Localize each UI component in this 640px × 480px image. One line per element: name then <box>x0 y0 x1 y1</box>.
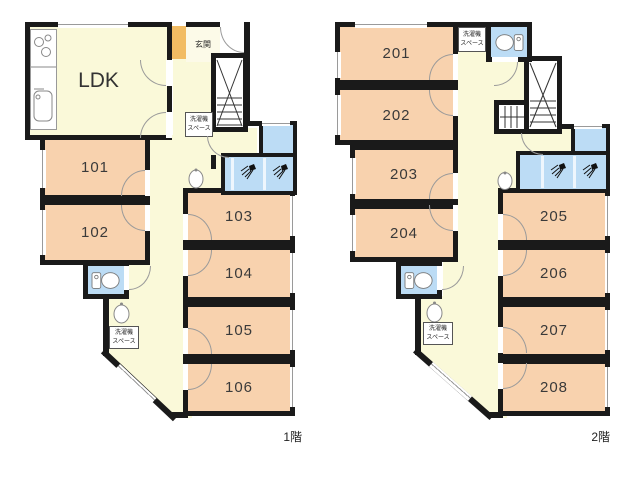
door-gap <box>145 170 150 196</box>
door-gap <box>453 205 458 231</box>
washbasin-icon <box>188 166 204 189</box>
window-marker <box>574 124 602 129</box>
kitchen-sink-icon <box>34 89 52 121</box>
washbasin-icon <box>113 300 130 324</box>
partition <box>263 158 266 190</box>
window-marker <box>40 210 46 255</box>
room-204-label: 204 <box>390 225 418 242</box>
washbasin-icon <box>497 169 513 191</box>
kitchen-counter <box>30 29 57 130</box>
room-105-label: 105 <box>225 322 253 339</box>
partition <box>541 156 544 188</box>
washer-space-label: 洗濯機 スペース <box>109 326 139 349</box>
shower-icon <box>549 162 567 180</box>
window-marker <box>290 196 296 236</box>
room-104-label: 104 <box>225 265 253 282</box>
window-marker <box>605 196 611 236</box>
washer-space-label: 洗濯機 スペース <box>185 112 213 137</box>
window-marker <box>605 367 611 407</box>
room-203-label: 203 <box>390 166 418 183</box>
door-gap <box>453 54 458 80</box>
room-102-label: 102 <box>81 224 109 241</box>
entrance-label: 玄関 <box>195 39 211 50</box>
stairs-icon <box>524 56 562 134</box>
window-marker <box>40 150 46 188</box>
room-205-label: 205 <box>540 208 568 225</box>
door-gap <box>166 112 172 138</box>
washer-space-label: 洗濯機 スペース <box>458 27 486 52</box>
room-208-label: 208 <box>540 379 568 396</box>
toilet-room <box>486 22 532 62</box>
window-marker <box>290 367 296 407</box>
toilet-icon <box>494 32 524 53</box>
room-201-label: 201 <box>382 45 410 62</box>
window-marker <box>605 253 611 293</box>
shower-icon <box>581 162 599 180</box>
toilet-icon <box>91 270 121 291</box>
toilet-room <box>83 261 129 299</box>
shower-icon <box>271 163 289 181</box>
room-103-label: 103 <box>225 208 253 225</box>
entrance-shoe-cabinet <box>172 26 186 59</box>
door-swing-arc <box>220 27 244 53</box>
washbasin-icon <box>426 299 443 323</box>
window-marker <box>335 95 341 135</box>
wall <box>211 155 216 169</box>
window-marker <box>262 121 290 126</box>
partition <box>231 158 234 190</box>
washer-space-label: 洗濯機 スペース <box>423 322 453 345</box>
floor-plan-canvas: LDK 玄関 101 102 103 <box>0 0 640 480</box>
room-207-label: 207 <box>540 322 568 339</box>
room-106-label: 106 <box>225 379 253 396</box>
partition <box>573 156 576 188</box>
room-202-label: 202 <box>382 107 410 124</box>
door-gap <box>453 90 458 116</box>
window-marker <box>335 52 341 78</box>
window-marker <box>355 22 427 28</box>
toilet-room <box>396 261 442 299</box>
window-marker <box>58 22 128 28</box>
wall <box>415 293 421 355</box>
floor1-caption: 1階 <box>262 428 302 445</box>
room-101-label: 101 <box>81 159 109 176</box>
toilet-icon <box>404 270 434 291</box>
window-marker <box>290 253 296 293</box>
stairs-icon <box>211 53 248 132</box>
room-ldk-label: LDK <box>78 69 119 93</box>
door-gap <box>453 173 458 199</box>
window-marker <box>605 310 611 350</box>
shower-icon <box>239 163 257 181</box>
window-marker <box>290 310 296 350</box>
room-206-label: 206 <box>540 265 568 282</box>
floor2-caption: 2階 <box>570 428 610 445</box>
window-marker <box>350 158 356 194</box>
door-gap <box>145 205 150 231</box>
door-gap <box>166 60 172 86</box>
window-marker <box>350 215 356 251</box>
